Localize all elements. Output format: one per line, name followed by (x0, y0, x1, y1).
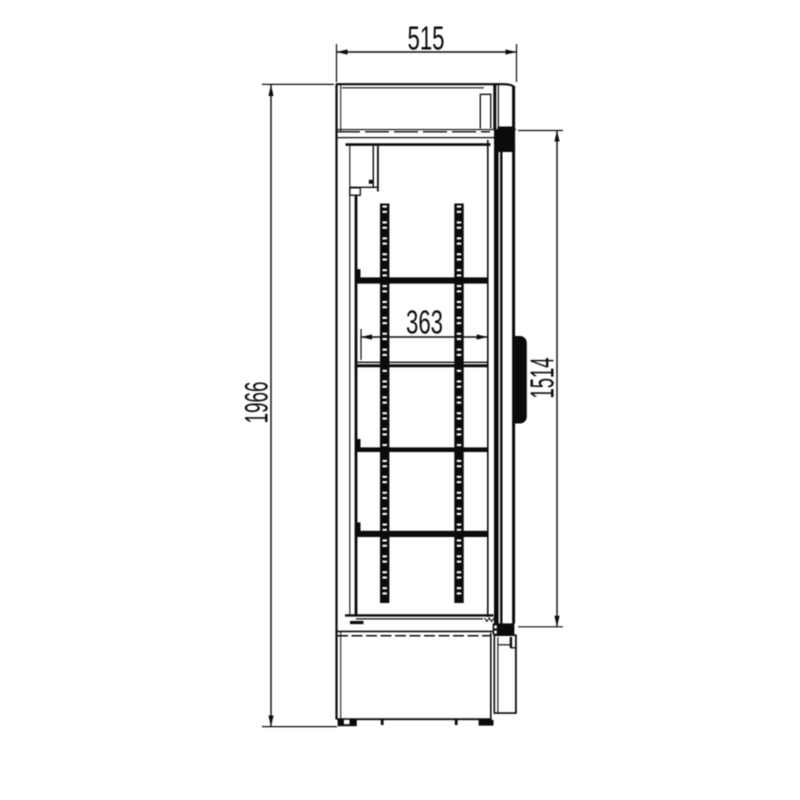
svg-text:515: 515 (408, 20, 445, 57)
svg-text:363: 363 (406, 304, 443, 341)
svg-text:1966: 1966 (239, 382, 275, 424)
svg-text:1514: 1514 (524, 358, 561, 399)
